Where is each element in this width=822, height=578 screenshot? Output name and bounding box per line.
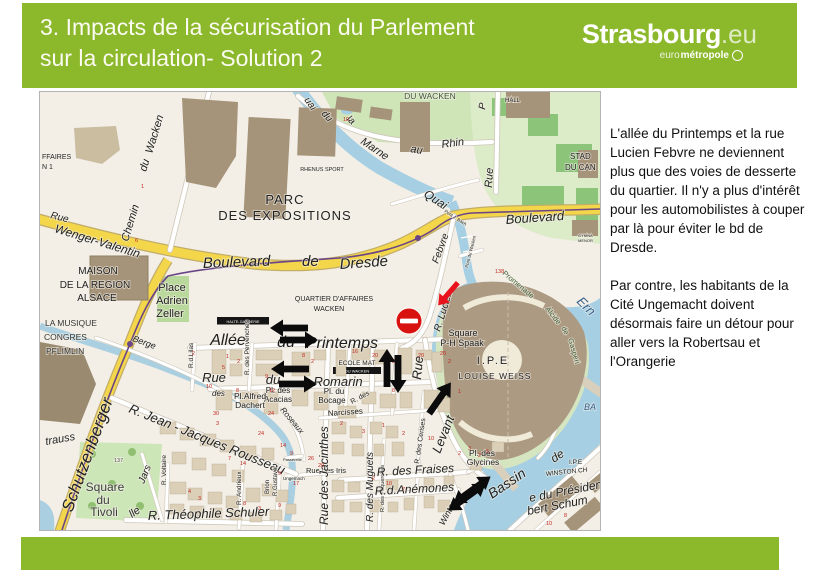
svg-text:8: 8 — [564, 513, 567, 519]
svg-text:17: 17 — [293, 481, 299, 487]
logo-subtitle: eurométropole — [582, 50, 757, 61]
logo-brand: Strasbourg — [582, 19, 721, 49]
svg-text:5: 5 — [222, 365, 225, 371]
svg-text:8: 8 — [392, 388, 395, 394]
svg-text:HALL: HALL — [505, 98, 521, 104]
svg-text:MENOR: MENOR — [578, 238, 593, 243]
svg-text:26: 26 — [308, 456, 314, 462]
svg-text:2: 2 — [458, 451, 461, 457]
svg-text:au: au — [409, 143, 423, 157]
svg-text:Rue des Jacinthes: Rue des Jacinthes — [317, 426, 331, 525]
svg-text:7: 7 — [402, 487, 405, 493]
svg-text:1: 1 — [458, 389, 461, 395]
svg-text:Rue: Rue — [483, 167, 496, 188]
svg-text:9: 9 — [265, 374, 268, 380]
explanation-paragraph-1: L'allée du Printemps et la rue Lucien Fe… — [610, 124, 808, 257]
svg-text:R. des Pervenches: R. des Pervenches — [244, 319, 251, 375]
svg-text:5: 5 — [486, 449, 489, 455]
svg-text:BA: BA — [584, 402, 596, 412]
svg-text:20: 20 — [440, 351, 446, 357]
svg-text:10: 10 — [546, 521, 552, 527]
slide-title-line1: 3. Impacts de la sécurisation du Parleme… — [40, 12, 475, 43]
svg-text:10: 10 — [343, 117, 349, 123]
svg-text:10: 10 — [386, 481, 392, 487]
svg-text:2: 2 — [448, 359, 451, 365]
explanation-panel: L'allée du Printemps et la rue Lucien Fe… — [610, 124, 808, 390]
svg-text:Rue: Rue — [202, 370, 226, 385]
svg-text:N 1: N 1 — [42, 164, 53, 171]
svg-text:R. Andrieux: R. Andrieux — [236, 471, 243, 505]
svg-text:QUARTIER D'AFFAIRES: QUARTIER D'AFFAIRES — [295, 296, 374, 303]
slide: 3. Impacts de la sécurisation du Parleme… — [0, 0, 822, 578]
logo-sub-thin: euro — [660, 51, 680, 61]
svg-text:ALSACE: ALSACE — [77, 293, 117, 304]
svg-text:WACKEN: WACKEN — [314, 306, 344, 313]
svg-text:R. Voltaire: R. Voltaire — [161, 455, 168, 485]
svg-text:3: 3 — [362, 429, 365, 435]
logo-tld: .eu — [721, 19, 757, 49]
svg-text:Brion: Brion — [265, 480, 271, 494]
svg-text:1: 1 — [382, 423, 385, 429]
svg-text:30: 30 — [213, 411, 219, 417]
svg-text:P-H Spaak: P-H Spaak — [440, 338, 484, 348]
svg-text:MAISON: MAISON — [78, 266, 117, 277]
svg-text:Place: Place — [158, 282, 186, 294]
svg-text:4: 4 — [188, 489, 191, 495]
svg-text:Zeller: Zeller — [156, 308, 184, 320]
svg-text:Allée: Allée — [209, 332, 246, 349]
svg-text:DES EXPOSITIONS: DES EXPOSITIONS — [218, 208, 351, 223]
svg-text:3: 3 — [198, 496, 201, 502]
svg-text:DU WACKEN: DU WACKEN — [345, 369, 369, 374]
svg-text:LOUISE WEISS: LOUISE WEISS — [459, 371, 532, 381]
svg-text:24: 24 — [258, 431, 264, 437]
slide-header: 3. Impacts de la sécurisation du Parleme… — [22, 3, 797, 88]
svg-text:10: 10 — [428, 436, 434, 442]
svg-text:PARC: PARC — [265, 192, 304, 207]
svg-text:Acacias: Acacias — [264, 395, 292, 404]
svg-text:Dresde: Dresde — [339, 253, 388, 273]
svg-text:I.P.E: I.P.E — [477, 355, 509, 367]
svg-text:20: 20 — [418, 353, 424, 359]
svg-text:20: 20 — [372, 353, 378, 359]
svg-text:Adrien: Adrien — [156, 295, 188, 307]
slide-title: 3. Impacts de la sécurisation du Parleme… — [40, 12, 475, 74]
svg-text:9: 9 — [290, 451, 293, 457]
svg-text:de: de — [302, 253, 319, 270]
svg-text:2: 2 — [237, 359, 240, 365]
svg-text:STAD: STAD — [570, 152, 591, 161]
svg-text:7: 7 — [228, 456, 231, 462]
svg-text:20: 20 — [318, 463, 324, 469]
svg-text:3: 3 — [468, 446, 471, 452]
svg-text:Square: Square — [86, 480, 125, 494]
svg-text:2: 2 — [402, 431, 405, 437]
no-entry-sign — [396, 308, 422, 334]
svg-text:DE LA REGION: DE LA REGION — [60, 280, 131, 291]
svg-text:I.P.E: I.P.E — [569, 459, 583, 466]
svg-text:Printemps: Printemps — [306, 335, 378, 352]
svg-text:1: 1 — [141, 184, 144, 190]
svg-text:8: 8 — [302, 353, 305, 359]
svg-text:9: 9 — [278, 471, 281, 477]
svg-text:137: 137 — [114, 458, 123, 464]
svg-text:Bocage: Bocage — [318, 396, 346, 405]
svg-text:Dachert: Dachert — [235, 400, 265, 410]
svg-text:14: 14 — [240, 461, 246, 467]
footer-bar — [21, 537, 779, 570]
svg-text:8: 8 — [236, 388, 239, 394]
strasbourg-map-figure: FFAIRESN 1RueWenger-ValentinCheminduWack… — [40, 92, 600, 530]
svg-text:FFAIRES: FFAIRES — [42, 154, 72, 161]
svg-text:2: 2 — [478, 453, 481, 459]
svg-text:24: 24 — [268, 411, 274, 417]
svg-text:DU WACKEN: DU WACKEN — [404, 92, 456, 101]
svg-text:2: 2 — [192, 351, 195, 357]
explanation-paragraph-2: Par contre, les habitants de la Cité Ung… — [610, 276, 808, 371]
svg-text:Boulevard: Boulevard — [203, 253, 272, 272]
svg-text:Pl. du: Pl. du — [324, 387, 344, 396]
svg-text:CONGRES: CONGRES — [44, 332, 87, 342]
svg-text:DU CAN: DU CAN — [565, 163, 596, 172]
svg-text:16: 16 — [352, 349, 358, 355]
tram-station — [415, 235, 421, 241]
svg-text:Glycines: Glycines — [467, 457, 500, 467]
svg-text:2: 2 — [311, 359, 314, 365]
svg-text:6: 6 — [135, 238, 138, 244]
svg-text:8: 8 — [243, 501, 246, 507]
svg-text:2: 2 — [340, 421, 343, 427]
svg-text:des: des — [212, 389, 225, 398]
svg-text:LA MUSIQUE: LA MUSIQUE — [45, 318, 97, 328]
svg-text:10: 10 — [206, 384, 212, 390]
svg-text:3: 3 — [258, 506, 261, 512]
svg-text:Passerelle: Passerelle — [283, 457, 302, 462]
svg-text:138: 138 — [495, 269, 504, 275]
svg-text:12: 12 — [269, 388, 275, 394]
svg-text:RHENUS SPORT: RHENUS SPORT — [300, 167, 344, 173]
svg-text:ECOLE MAT: ECOLE MAT — [338, 360, 375, 367]
slide-title-line2: sur la circulation- Solution 2 — [40, 43, 475, 74]
map-canvas: FFAIRESN 1RueWenger-ValentinCheminduWack… — [40, 92, 600, 530]
logo-ring-icon — [732, 50, 743, 61]
svg-text:1: 1 — [226, 354, 229, 360]
svg-text:9: 9 — [278, 503, 281, 509]
svg-text:3: 3 — [216, 421, 219, 427]
svg-text:2: 2 — [372, 476, 375, 482]
svg-text:14: 14 — [280, 443, 286, 449]
svg-text:Square: Square — [448, 328, 477, 338]
svg-text:PFLIMLIN: PFLIMLIN — [46, 346, 84, 356]
strasbourg-eu-logo: Strasbourg.eu eurométropole — [582, 21, 757, 61]
logo-sub-bold: métropole — [681, 51, 729, 61]
svg-text:Tivoli: Tivoli — [90, 505, 118, 519]
